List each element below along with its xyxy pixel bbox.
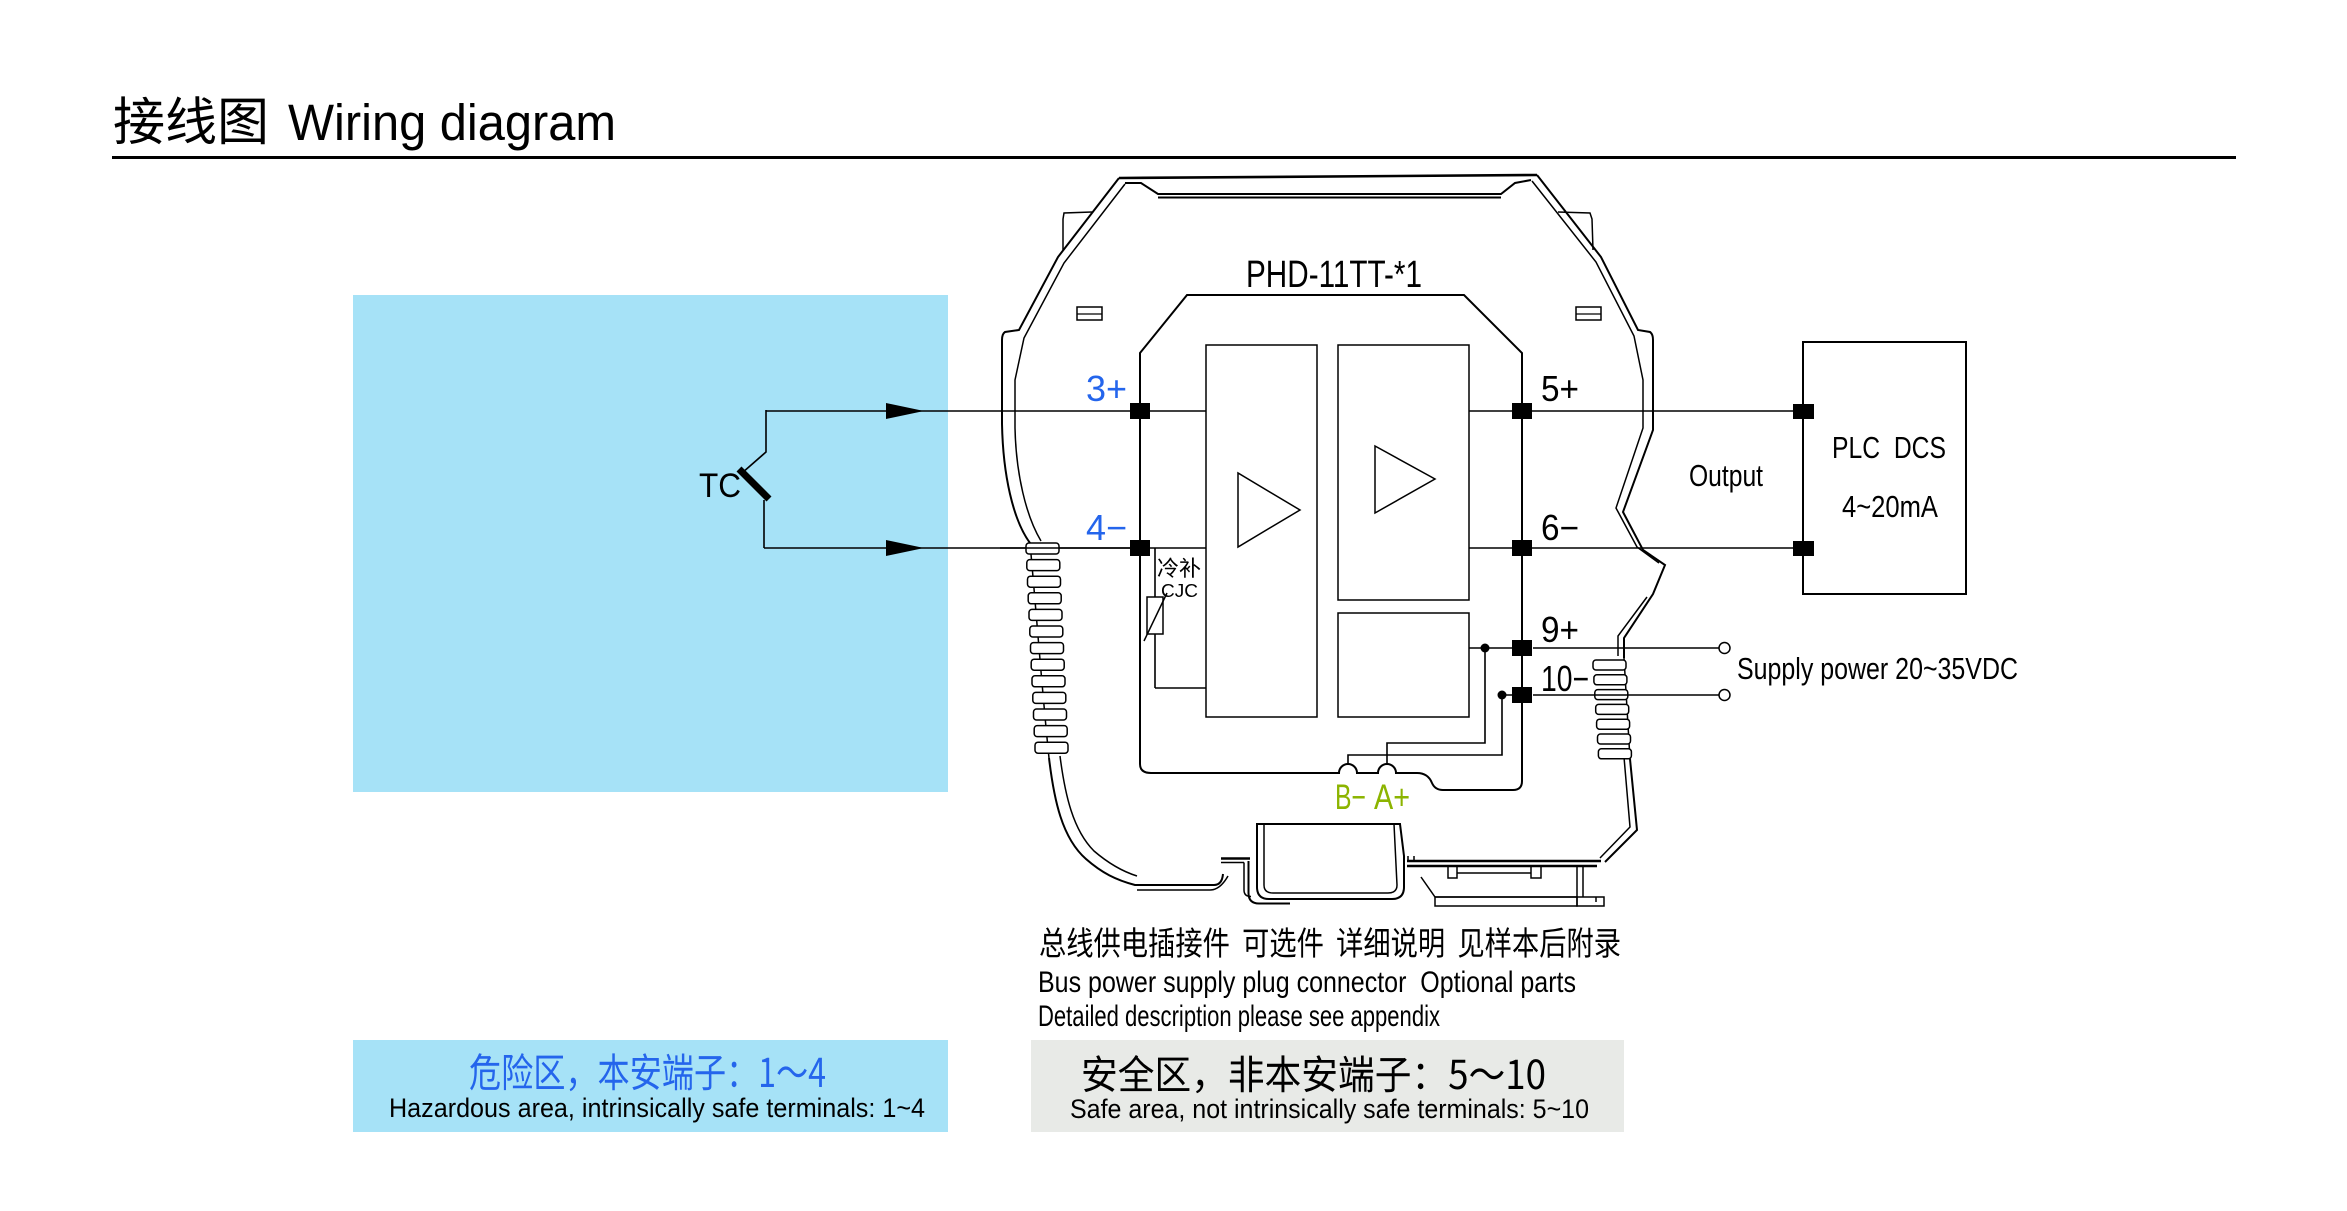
svg-text:A+: A+: [1374, 778, 1410, 817]
svg-text:PHD-11TT-*1: PHD-11TT-*1: [1246, 254, 1422, 296]
svg-text:5+: 5+: [1541, 368, 1579, 409]
svg-text:Bus power supply plug connecto: Bus power supply plug connector Optional…: [1038, 966, 1576, 999]
svg-text:10−: 10−: [1541, 658, 1589, 699]
svg-text:PLC DCS: PLC DCS: [1832, 430, 1946, 465]
svg-text:4~20mA: 4~20mA: [1842, 489, 1938, 524]
svg-text:CJC: CJC: [1161, 581, 1198, 601]
svg-text:6−: 6−: [1541, 507, 1579, 548]
svg-text:4−: 4−: [1086, 507, 1127, 548]
svg-text:Hazardous area, intrinsically: Hazardous area, intrinsically safe termi…: [389, 1093, 925, 1123]
svg-text:9+: 9+: [1541, 609, 1579, 650]
svg-text:Wiring diagram: Wiring diagram: [288, 94, 616, 151]
svg-text:TC: TC: [699, 467, 741, 505]
svg-text:Output: Output: [1689, 458, 1763, 493]
svg-text:B−: B−: [1335, 778, 1366, 817]
svg-text:3+: 3+: [1086, 368, 1127, 409]
svg-text:Detailed description please se: Detailed description please see appendix: [1038, 1000, 1440, 1033]
svg-text:Safe area, not intrinsically s: Safe area, not intrinsically safe termin…: [1070, 1094, 1589, 1124]
svg-text:Supply power 20~35VDC: Supply power 20~35VDC: [1737, 651, 2018, 686]
